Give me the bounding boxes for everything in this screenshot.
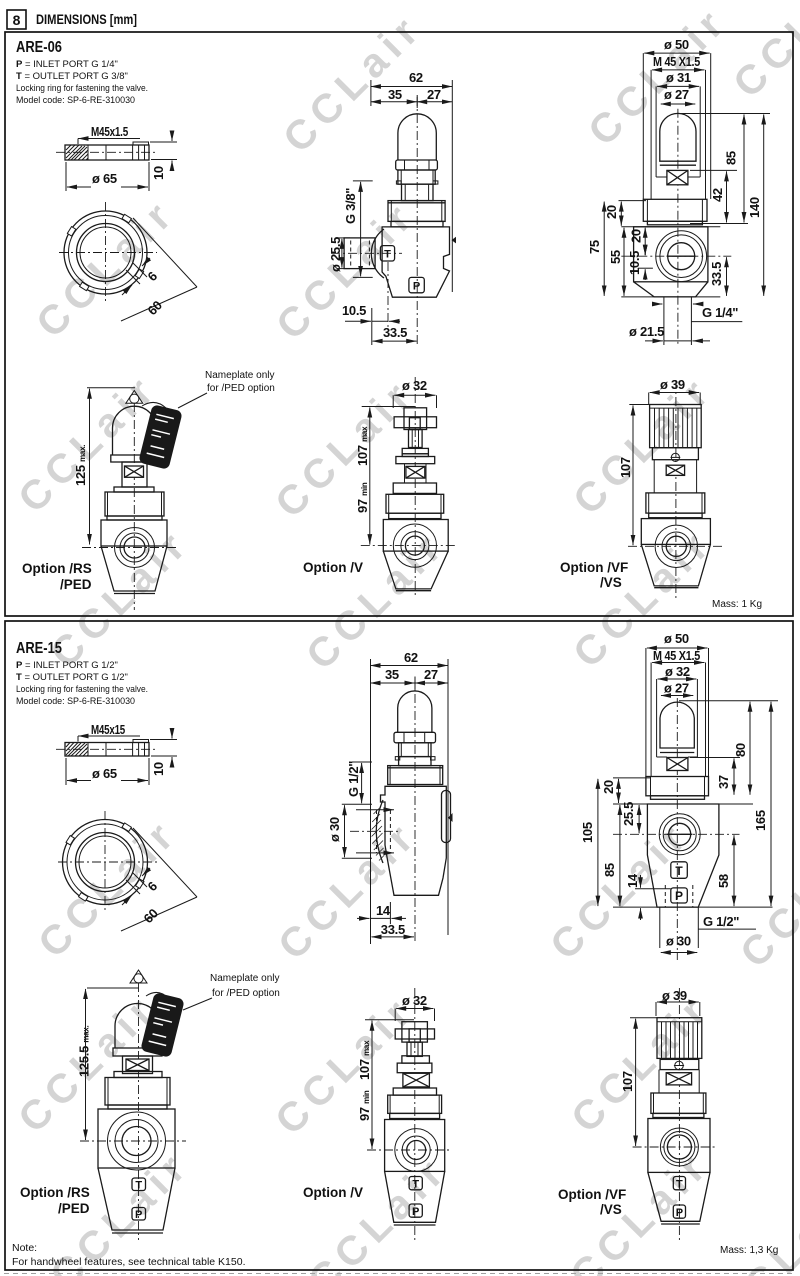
svg-text:107: 107 [620,1071,635,1092]
svg-text:ø 27: ø 27 [664,681,689,696]
svg-text:ø 65: ø 65 [92,766,117,781]
svg-text:Nameplate only: Nameplate only [205,370,274,381]
svg-text:Model code: SP-6-RE-310030: Model code: SP-6-RE-310030 [16,696,135,707]
svg-text:165: 165 [753,810,768,831]
svg-text:10: 10 [151,762,166,776]
svg-text:T: T [384,249,391,261]
svg-text:/VS: /VS [600,1202,622,1217]
svg-text:20: 20 [604,205,619,219]
svg-text:M 45 X1.5: M 45 X1.5 [653,648,700,663]
svg-text:6: 6 [145,269,161,285]
svg-text:For handwheel features, see te: For handwheel features, see technical ta… [12,1256,245,1268]
svg-text:97 min: 97 min [357,1090,372,1121]
svg-text:Option /V: Option /V [303,560,363,575]
svg-text:P: P [412,1206,419,1218]
svg-text:25.5: 25.5 [621,802,636,826]
svg-text:105: 105 [580,822,595,843]
svg-text:/PED: /PED [60,577,92,592]
svg-text:Option /RS: Option /RS [20,1185,90,1200]
svg-text:CCLair: CCLair [709,1177,800,1276]
svg-text:P = INLET PORT G 1/2": P = INLET PORT G 1/2" [16,660,118,671]
svg-text:CCLair: CCLair [266,369,423,526]
svg-text:CCLair: CCLair [297,521,454,678]
svg-text:85: 85 [724,151,739,165]
svg-text:27: 27 [427,87,441,102]
svg-text:75: 75 [587,240,602,254]
svg-text:14: 14 [625,873,640,888]
svg-text:T: T [412,1179,419,1191]
svg-text:CCLair: CCLair [561,1141,718,1276]
svg-text:M45x15: M45x15 [91,722,125,737]
svg-text:ø 21.5: ø 21.5 [629,324,664,339]
svg-text:14: 14 [376,903,391,918]
svg-text:107: 107 [618,457,633,478]
svg-text:CCLair: CCLair [27,189,184,346]
svg-text:Nameplate only: Nameplate only [210,973,279,984]
svg-text:35: 35 [385,667,399,682]
svg-text:33.5: 33.5 [381,922,405,937]
svg-text:ø 39: ø 39 [660,377,685,392]
svg-text:P = INLET PORT G 1/4": P = INLET PORT G 1/4" [16,59,118,70]
svg-text:ARE-15: ARE-15 [16,640,62,657]
svg-text:35: 35 [388,87,402,102]
svg-text:20: 20 [601,780,616,794]
svg-text:Locking ring for fastening the: Locking ring for fastening the valve. [16,684,148,695]
svg-text:10.5: 10.5 [342,303,366,318]
svg-text:10: 10 [151,166,166,180]
svg-text:ø 65: ø 65 [92,171,117,186]
svg-text:ø 50: ø 50 [664,37,689,52]
svg-text:T: T [135,1180,142,1192]
svg-text:60: 60 [145,298,165,318]
svg-text:ø 32: ø 32 [665,664,690,679]
svg-text:G 1/2": G 1/2" [346,761,361,797]
svg-text:M45x1.5: M45x1.5 [91,124,128,139]
svg-text:125.5 max.: 125.5 max. [77,1026,92,1077]
svg-text:P: P [413,280,420,292]
svg-text:58: 58 [716,874,731,888]
svg-text:97 min: 97 min [355,482,370,513]
svg-text:T = OUTLET PORT G 3/8": T = OUTLET PORT G 3/8" [16,71,128,82]
svg-text:Option /VF: Option /VF [560,560,628,575]
svg-text:Locking ring for fastening the: Locking ring for fastening the valve. [16,83,148,94]
svg-text:62: 62 [409,70,423,85]
svg-text:140: 140 [747,197,762,218]
svg-text:20: 20 [629,229,644,243]
svg-text:CCLair: CCLair [269,811,426,968]
svg-text:8: 8 [13,12,21,28]
svg-text:27: 27 [424,667,438,682]
svg-text:G 3/8": G 3/8" [343,188,358,224]
svg-text:CCLair: CCLair [41,519,198,676]
svg-text:Option /V: Option /V [303,1185,363,1200]
svg-text:Option /RS: Option /RS [22,561,92,576]
svg-text:for /PED option: for /PED option [207,383,275,394]
svg-text:Mass: 1 Kg: Mass: 1 Kg [712,599,762,610]
svg-text:10.5: 10.5 [627,251,642,275]
svg-text:55: 55 [608,250,623,264]
svg-text:DIMENSIONS [mm]: DIMENSIONS [mm] [36,12,137,27]
svg-text:P: P [675,889,683,903]
svg-text:6: 6 [145,879,161,895]
svg-text:ø 30: ø 30 [327,817,342,842]
svg-text:/PED: /PED [58,1201,90,1216]
svg-text:M 45 X1.5: M 45 X1.5 [653,54,700,69]
svg-text:CCLair: CCLair [579,0,736,154]
svg-text:for /PED option: for /PED option [212,988,280,999]
svg-text:G 1/2": G 1/2" [703,914,739,929]
svg-text:G 1/4": G 1/4" [702,305,738,320]
svg-text:CCLair: CCLair [274,4,431,161]
svg-text:/VS: /VS [600,575,622,590]
svg-text:42: 42 [710,188,725,202]
svg-text:ø 50: ø 50 [664,631,689,646]
svg-text:37: 37 [716,775,731,789]
svg-text:33.5: 33.5 [709,262,724,286]
svg-text:62: 62 [404,650,418,665]
svg-text:Model code: SP-6-RE-310030: Model code: SP-6-RE-310030 [16,95,135,106]
svg-text:Note:: Note: [12,1242,37,1254]
svg-text:CCLair: CCLair [724,0,800,106]
svg-text:T: T [675,864,683,878]
svg-text:33.5: 33.5 [383,325,407,340]
svg-text:85: 85 [602,863,617,877]
svg-text:Mass: 1,3 Kg: Mass: 1,3 Kg [720,1245,778,1256]
svg-text:ø 25.5: ø 25.5 [328,237,343,272]
svg-text:ø 39: ø 39 [662,988,687,1003]
svg-text:CCLair: CCLair [299,1146,456,1276]
svg-text:CCLair: CCLair [564,366,721,523]
svg-text:60: 60 [141,906,161,926]
svg-text:ø 31: ø 31 [666,70,691,85]
svg-text:ø 32: ø 32 [402,378,427,393]
svg-text:T = OUTLET PORT G 1/2": T = OUTLET PORT G 1/2" [16,672,128,683]
svg-text:P: P [135,1209,142,1221]
svg-text:CCLair: CCLair [731,819,800,976]
svg-text:Option /VF: Option /VF [558,1187,626,1202]
svg-text:ø 27: ø 27 [664,87,689,102]
svg-text:ø 30: ø 30 [666,934,691,949]
svg-text:ARE-06: ARE-06 [16,39,62,56]
svg-text:80: 80 [733,743,748,757]
svg-text:T: T [676,1179,683,1191]
svg-text:P: P [676,1207,683,1219]
